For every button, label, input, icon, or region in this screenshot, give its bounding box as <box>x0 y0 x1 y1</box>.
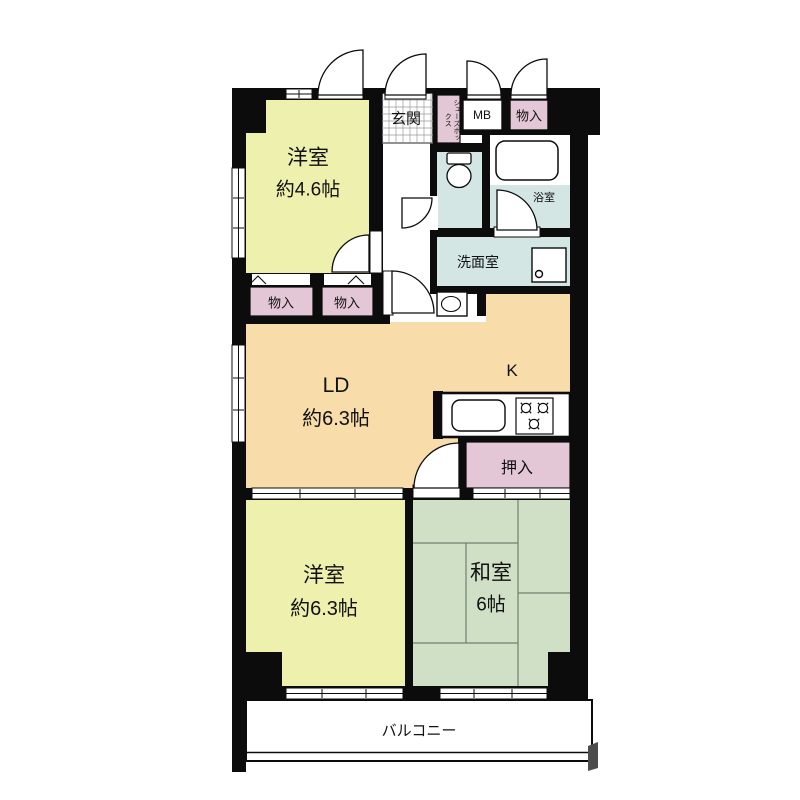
room-label-balcony: バルコニー <box>382 720 457 741</box>
room-label-living-dining: LD 約6.3帖 <box>302 369 370 435</box>
kitchen-counter <box>441 393 570 437</box>
balcony-shadow-corner <box>588 742 598 771</box>
stove-icon <box>516 398 553 434</box>
room-label-kitchen: K <box>506 361 517 381</box>
room-size: 約6.3帖 <box>290 593 358 625</box>
room-label-entrance: 玄関 <box>391 108 421 129</box>
wall-room-divider <box>405 500 413 686</box>
western-small-door-leaf <box>370 231 382 273</box>
wall-right <box>570 100 588 700</box>
bathtub-icon <box>496 141 558 180</box>
room-name: 和室 <box>470 557 512 591</box>
toilet-icon <box>447 153 471 188</box>
kitchen-upper-area <box>486 294 570 324</box>
sliding-window-western-balcony <box>286 688 403 699</box>
window-left-western-small <box>232 168 245 258</box>
pillar-bottom-left <box>232 652 282 700</box>
room-label-meter-box: MB <box>473 108 491 122</box>
sink-icon <box>452 400 505 431</box>
toilet-door-swing-arc <box>402 198 432 228</box>
room-name: LD <box>302 369 370 403</box>
room-label-shoe-box: シューズボックス <box>438 99 460 141</box>
room-label-storage-b: 物入 <box>334 293 360 312</box>
storage-a-front-gap <box>252 274 310 285</box>
wall-toilet-bath <box>482 133 490 232</box>
meter-box-door-swing-arc <box>467 61 501 95</box>
wall-stub-basin <box>477 294 486 316</box>
sliding-door-ld-western <box>252 488 403 499</box>
room-label-western-small: 洋室 約4.6帖 <box>276 142 340 207</box>
room-label-closet: 押入 <box>501 454 533 478</box>
pillar-bottom-right <box>548 652 588 700</box>
washbasin-icon <box>437 292 467 316</box>
room-label-storage-top: 物入 <box>516 106 542 125</box>
sliding-window-japanese-balcony <box>440 688 547 699</box>
washing-machine-icon <box>532 248 566 282</box>
door-swing-arc <box>318 50 363 95</box>
entrance-door-swing-arc <box>385 54 426 95</box>
storage-door-swing-arc <box>511 59 547 95</box>
room-size: 6帖 <box>470 591 512 622</box>
ld-door-swing-arc <box>392 271 434 313</box>
room-label-japanese: 和室 6帖 <box>470 557 512 622</box>
room-size: 約6.3帖 <box>302 403 370 435</box>
room-name: 洋室 <box>290 559 358 593</box>
wall-under-shoebox <box>433 143 490 152</box>
room-label-storage-a: 物入 <box>268 293 294 312</box>
room-label-western-large: 洋室 約6.3帖 <box>290 559 358 625</box>
window-top <box>286 89 312 99</box>
floor-plan-page: 洋室 約4.6帖 玄関 シューズボックス MB 物入 浴室 洗面室 物入 物入 … <box>0 0 800 800</box>
sliding-door-closet-japanese <box>473 488 570 499</box>
room-name: 洋室 <box>276 142 340 176</box>
pillar-top-left <box>232 88 266 133</box>
room-size: 約4.6帖 <box>276 176 340 207</box>
room-label-bathroom: 浴室 <box>533 189 555 205</box>
window-left-living <box>232 345 245 442</box>
room-label-washroom: 洗面室 <box>457 252 499 272</box>
